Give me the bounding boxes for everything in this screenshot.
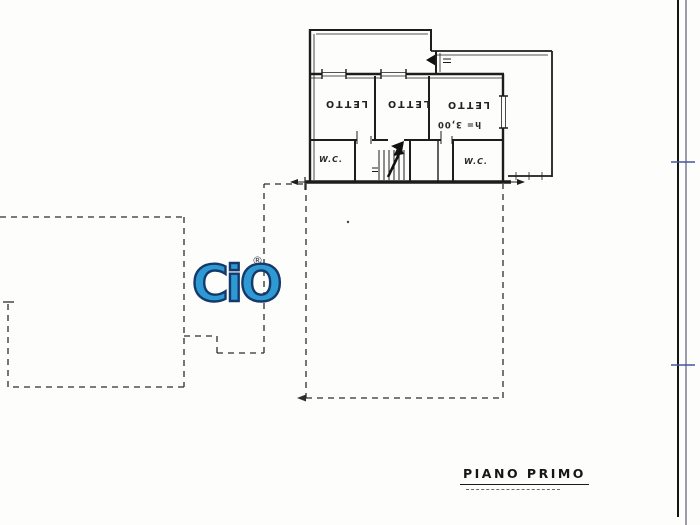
door-swing-arrow-icon — [426, 51, 451, 74]
scan-margin-lines — [671, 0, 695, 525]
registered-trademark-icon: ® — [252, 254, 263, 267]
watermark-logo: CiO ® — [192, 252, 276, 324]
stair-direction-arrow-icon — [388, 141, 404, 177]
ink-speck — [347, 221, 349, 223]
bedroom-label: LETTO — [324, 98, 368, 109]
footprint-arrow-icon — [297, 395, 306, 402]
bedroom-label: LETTO — [446, 99, 490, 110]
floor-caption: PIANO PRIMO — [460, 466, 589, 485]
wc-label: W.C. — [464, 157, 488, 166]
floor-caption-underline — [466, 489, 560, 490]
watermark-logo-text: CiO — [192, 255, 279, 313]
interior-walls — [310, 76, 503, 182]
bedroom-label: LETTO — [386, 98, 430, 109]
dashed-footprint-marks — [3, 177, 349, 402]
ceiling-height-note: h= 3,00 — [435, 119, 483, 129]
wc-label: W.C. — [319, 155, 343, 164]
floor-plan-drawing — [0, 0, 700, 525]
